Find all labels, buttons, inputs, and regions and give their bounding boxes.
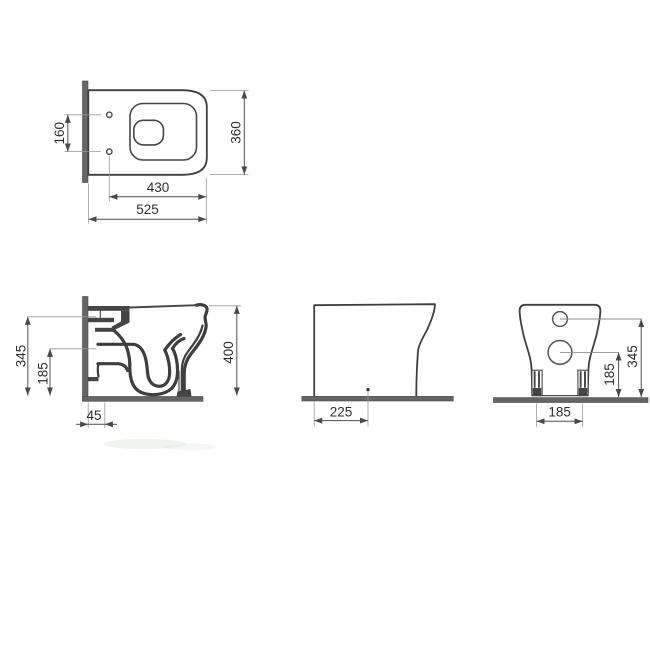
- rear-view: 345 185 185: [494, 305, 649, 427]
- rear-dim-fixing-spacing-label: 185: [548, 404, 571, 419]
- section-inlet-lower: [95, 328, 114, 332]
- section-floor-bar: [83, 397, 204, 402]
- section-outlet-shelf: [98, 364, 128, 371]
- section-dim-overall-height-label: 400: [221, 341, 236, 364]
- plan-wall-bar: [83, 81, 89, 183]
- side-dim-trap-distance-label: 225: [330, 405, 353, 420]
- section-dim-outlet-offset-label: 45: [86, 408, 101, 423]
- plan-water-spot: [134, 120, 164, 145]
- rear-dim-inlet-height-label: 345: [625, 345, 640, 368]
- section-inlet-shelf: [88, 318, 114, 322]
- section-outlet-bend: [98, 364, 99, 377]
- side-silhouette: [314, 304, 435, 396]
- toilet-technical-drawing: 160 360 430 525: [0, 0, 650, 650]
- plan-dim-overall-width-label: 360: [229, 121, 244, 144]
- section-dim-outlet-height-label: 185: [36, 362, 51, 385]
- side-trap-mark: [366, 388, 369, 391]
- plan-fixing-hole-bottom: [107, 149, 112, 154]
- section-dim-inlet-height-label: 345: [14, 345, 29, 368]
- section-sump-inner: [148, 350, 170, 386]
- section-view: 345 185 400 45: [14, 297, 241, 429]
- rear-floor-bar: [494, 398, 649, 403]
- rear-dim-outlet-height-label: 185: [602, 363, 617, 386]
- smudge-artifact: [103, 439, 216, 451]
- section-bowl-left-wall: [114, 331, 130, 366]
- side-view: 225: [302, 304, 454, 426]
- section-top-edge: [130, 305, 197, 307]
- plan-view: 160 360 430 525: [52, 81, 248, 224]
- plan-dim-bowl-depth-label: 430: [147, 180, 170, 195]
- section-outlet-pipe: [88, 377, 99, 381]
- technical-drawing-page: 160 360 430 525: [0, 0, 650, 650]
- section-rear-profile: [184, 305, 207, 391]
- plan-dim-hole-spacing-label: 160: [52, 122, 67, 145]
- rear-left-foot: [532, 370, 542, 395]
- plan-dim-overall-depth-label: 525: [136, 202, 159, 217]
- rear-right-foot: [578, 370, 588, 395]
- section-rim-channel: [112, 311, 130, 331]
- section-ext-lines: [28, 306, 241, 428]
- side-floor-bar: [302, 396, 454, 401]
- section-top-band: [88, 306, 130, 311]
- plan-fixing-hole-top: [107, 112, 112, 117]
- section-rim-shelf: [98, 344, 148, 372]
